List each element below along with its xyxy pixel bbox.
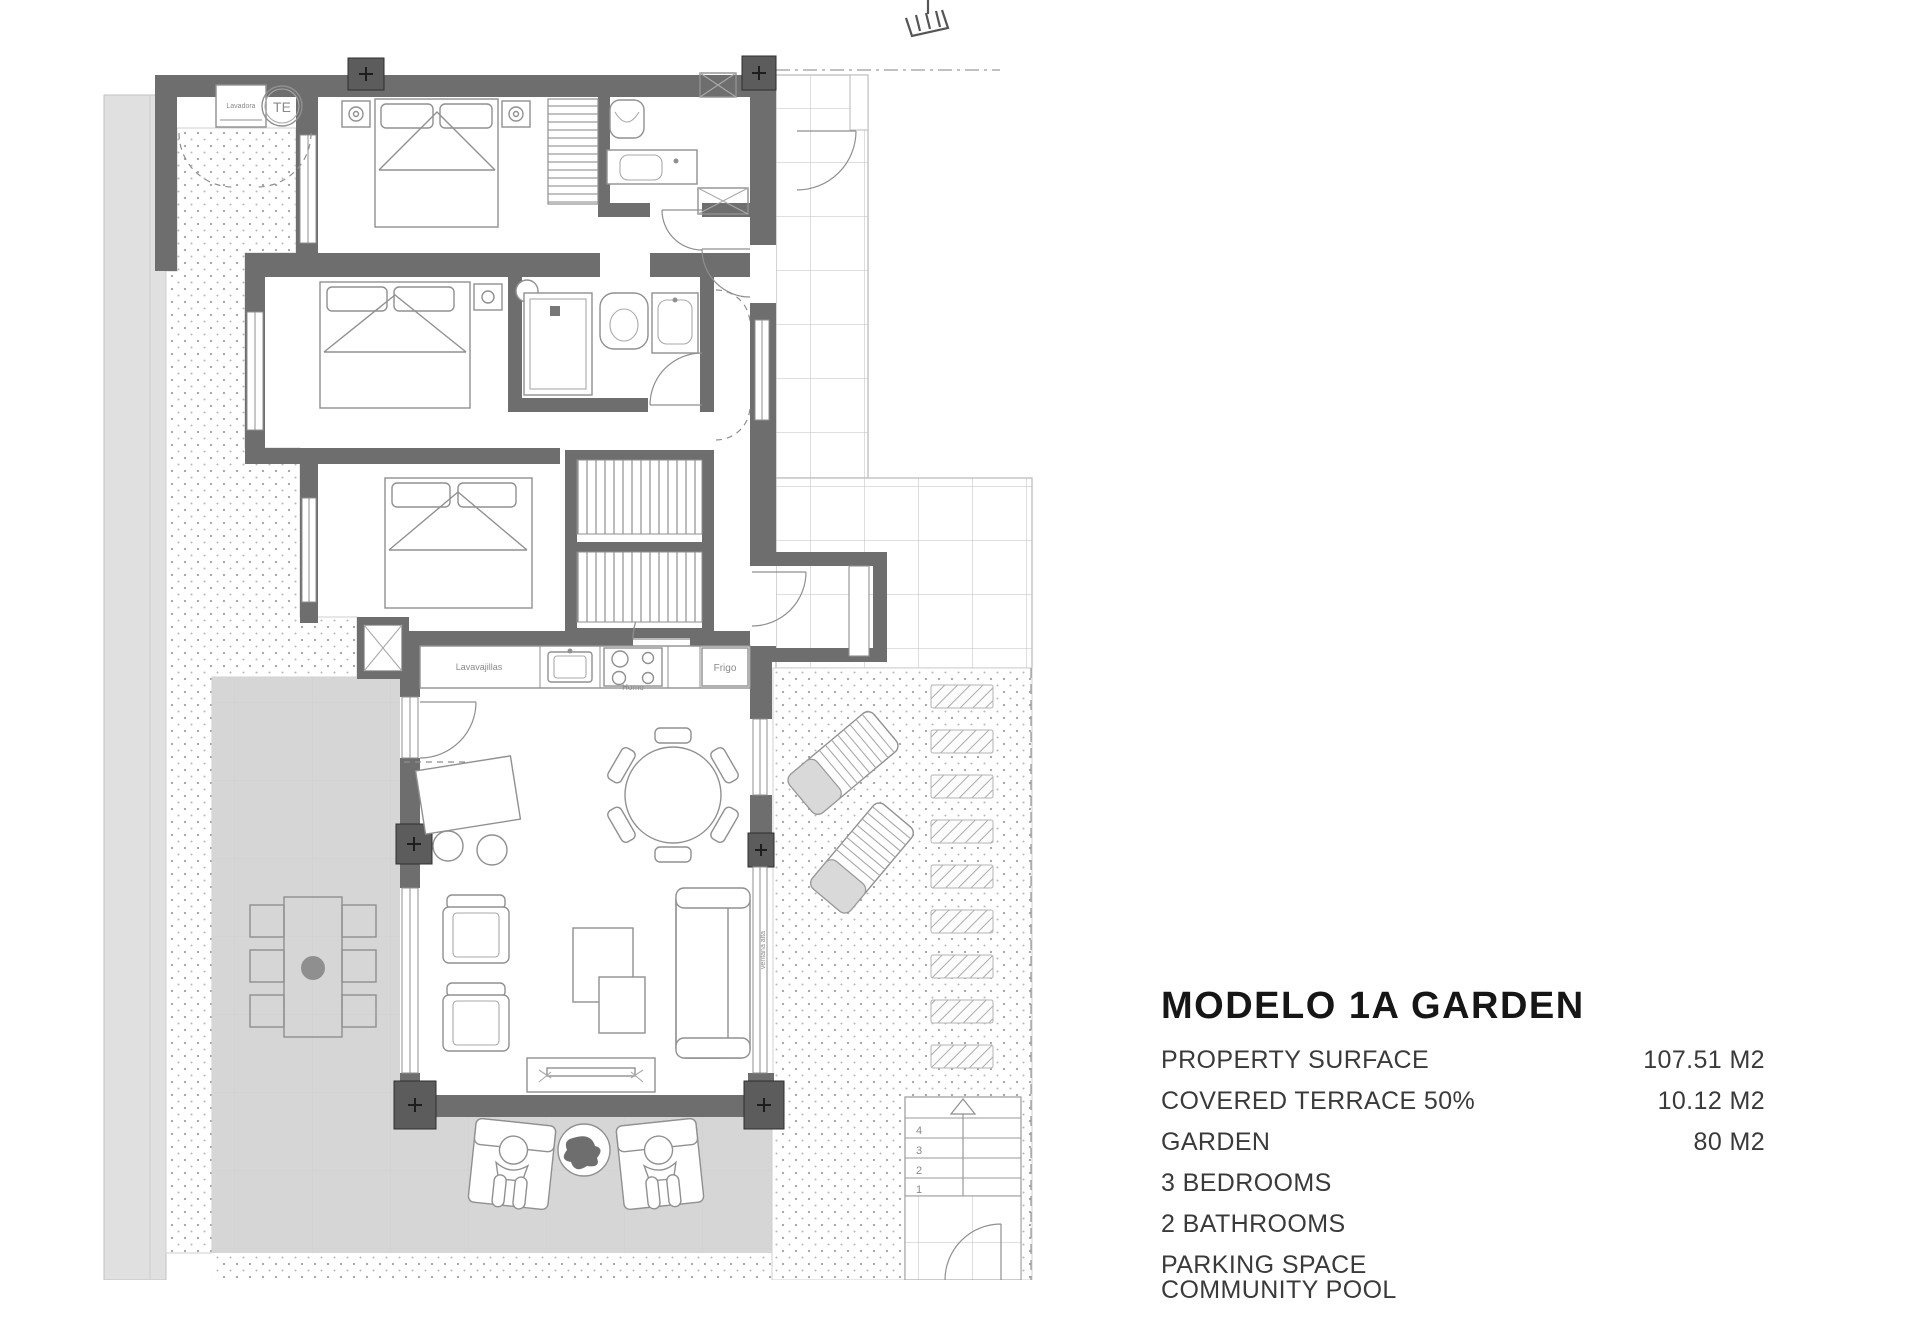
walkway bbox=[776, 75, 1032, 668]
bathroom-2-fixtures bbox=[524, 293, 698, 395]
stair-step-3: 3 bbox=[916, 1145, 922, 1157]
coffee-table bbox=[599, 977, 645, 1033]
toilet bbox=[610, 100, 644, 138]
window-note: ventana alta bbox=[760, 931, 767, 969]
water-heater-label: TE bbox=[273, 99, 291, 115]
spec-row-bedrooms: 3 BEDROOMS bbox=[1161, 1170, 1765, 1211]
dishwasher-label: Lavavajillas bbox=[456, 662, 503, 672]
spec-value: 107.51 M2 bbox=[1643, 1047, 1765, 1088]
lamp-post-icon bbox=[906, 0, 948, 36]
spec-panel: MODELO 1A GARDEN PROPERTY SURFACE 107.51… bbox=[1161, 984, 1765, 1318]
spec-row-property-surface: PROPERTY SURFACE 107.51 M2 bbox=[1161, 1047, 1765, 1088]
tv-bench bbox=[527, 1058, 655, 1092]
spec-row-bathrooms: 2 BATHROOMS bbox=[1161, 1211, 1765, 1252]
oven-label: Horno bbox=[622, 683, 644, 692]
stair-step-4: 4 bbox=[916, 1125, 922, 1137]
spec-label: 2 BATHROOMS bbox=[1161, 1211, 1346, 1252]
armchair bbox=[443, 983, 509, 1051]
nightstand bbox=[342, 101, 370, 127]
spec-row-community: COMMUNITY POOL bbox=[1161, 1277, 1765, 1318]
spec-label: COVERED TERRACE 50% bbox=[1161, 1088, 1475, 1129]
sofa bbox=[676, 888, 750, 1058]
wardrobe bbox=[548, 99, 598, 204]
spec-label: GARDEN bbox=[1161, 1129, 1270, 1170]
spec-label: PROPERTY SURFACE bbox=[1161, 1047, 1429, 1088]
interior-stairs bbox=[577, 460, 702, 622]
living-furniture: ventana alta bbox=[443, 888, 767, 1092]
spec-row-covered-terrace: COVERED TERRACE 50% 10.12 M2 bbox=[1161, 1088, 1765, 1129]
bedroom-1-furniture bbox=[342, 99, 598, 227]
plant bbox=[301, 956, 325, 980]
washer-label: Lavadora bbox=[226, 103, 255, 110]
stair-step-2: 2 bbox=[916, 1165, 922, 1177]
spec-value: 10.12 M2 bbox=[1658, 1088, 1765, 1129]
dining-set bbox=[606, 728, 740, 862]
spec-value: 80 M2 bbox=[1694, 1129, 1765, 1170]
outdoor-stairs: 4 3 2 1 bbox=[905, 1097, 1021, 1280]
plan-title: MODELO 1A GARDEN bbox=[1161, 984, 1765, 1028]
parking-strip bbox=[931, 685, 993, 1068]
stove: Horno bbox=[604, 648, 662, 692]
stair-step-1: 1 bbox=[916, 1184, 922, 1196]
spec-label: COMMUNITY POOL bbox=[1161, 1277, 1397, 1318]
spec-label: 3 BEDROOMS bbox=[1161, 1170, 1332, 1211]
armchair bbox=[443, 895, 509, 963]
fridge-label: Frigo bbox=[714, 663, 737, 674]
nightstand bbox=[474, 284, 502, 310]
spec-row-garden: GARDEN 80 M2 bbox=[1161, 1129, 1765, 1170]
bedroom-3-furniture bbox=[385, 478, 532, 608]
bedroom-2-furniture bbox=[320, 280, 538, 408]
nightstand bbox=[502, 101, 530, 127]
